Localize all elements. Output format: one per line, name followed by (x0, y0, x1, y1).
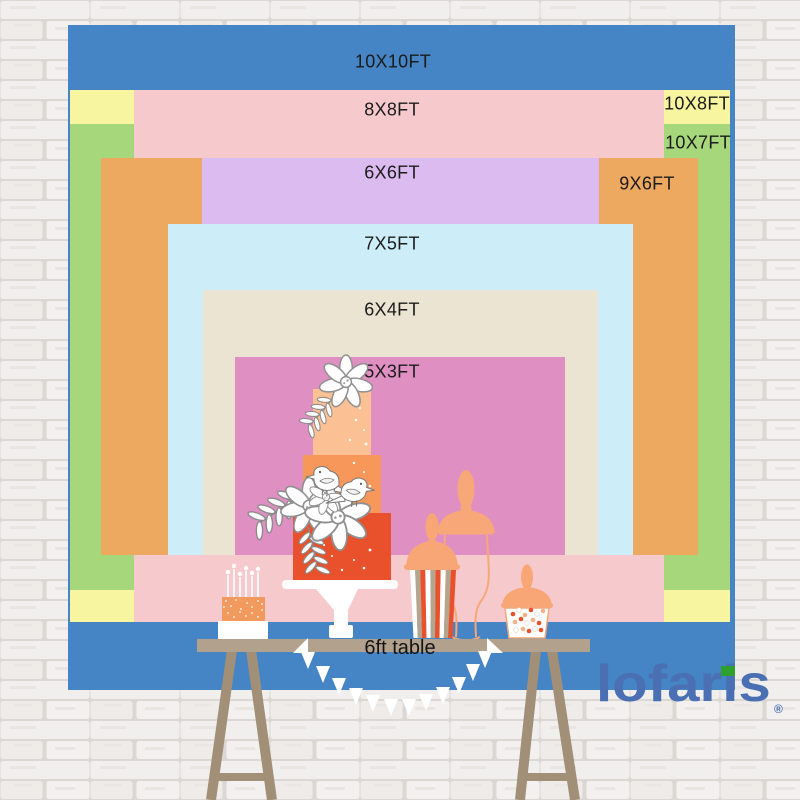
table-legs (211, 650, 575, 800)
brand-logo: lofaris ® (596, 658, 800, 730)
table (197, 639, 590, 800)
candle-cake-icon (218, 564, 268, 639)
backdrop-size-chart: 10X10FT10X8FT10X7FT8X8FT9X6FT6X6FT7X5FT6… (0, 0, 800, 800)
brand-wordmark: lofaris (596, 658, 771, 710)
brand-i-dot-icon (721, 666, 735, 676)
registered-trademark: ® (774, 702, 783, 716)
table-size-label: 6ft table (364, 637, 435, 659)
candy-jar-icon (501, 565, 553, 639)
tiered-cake-icon (240, 355, 398, 638)
